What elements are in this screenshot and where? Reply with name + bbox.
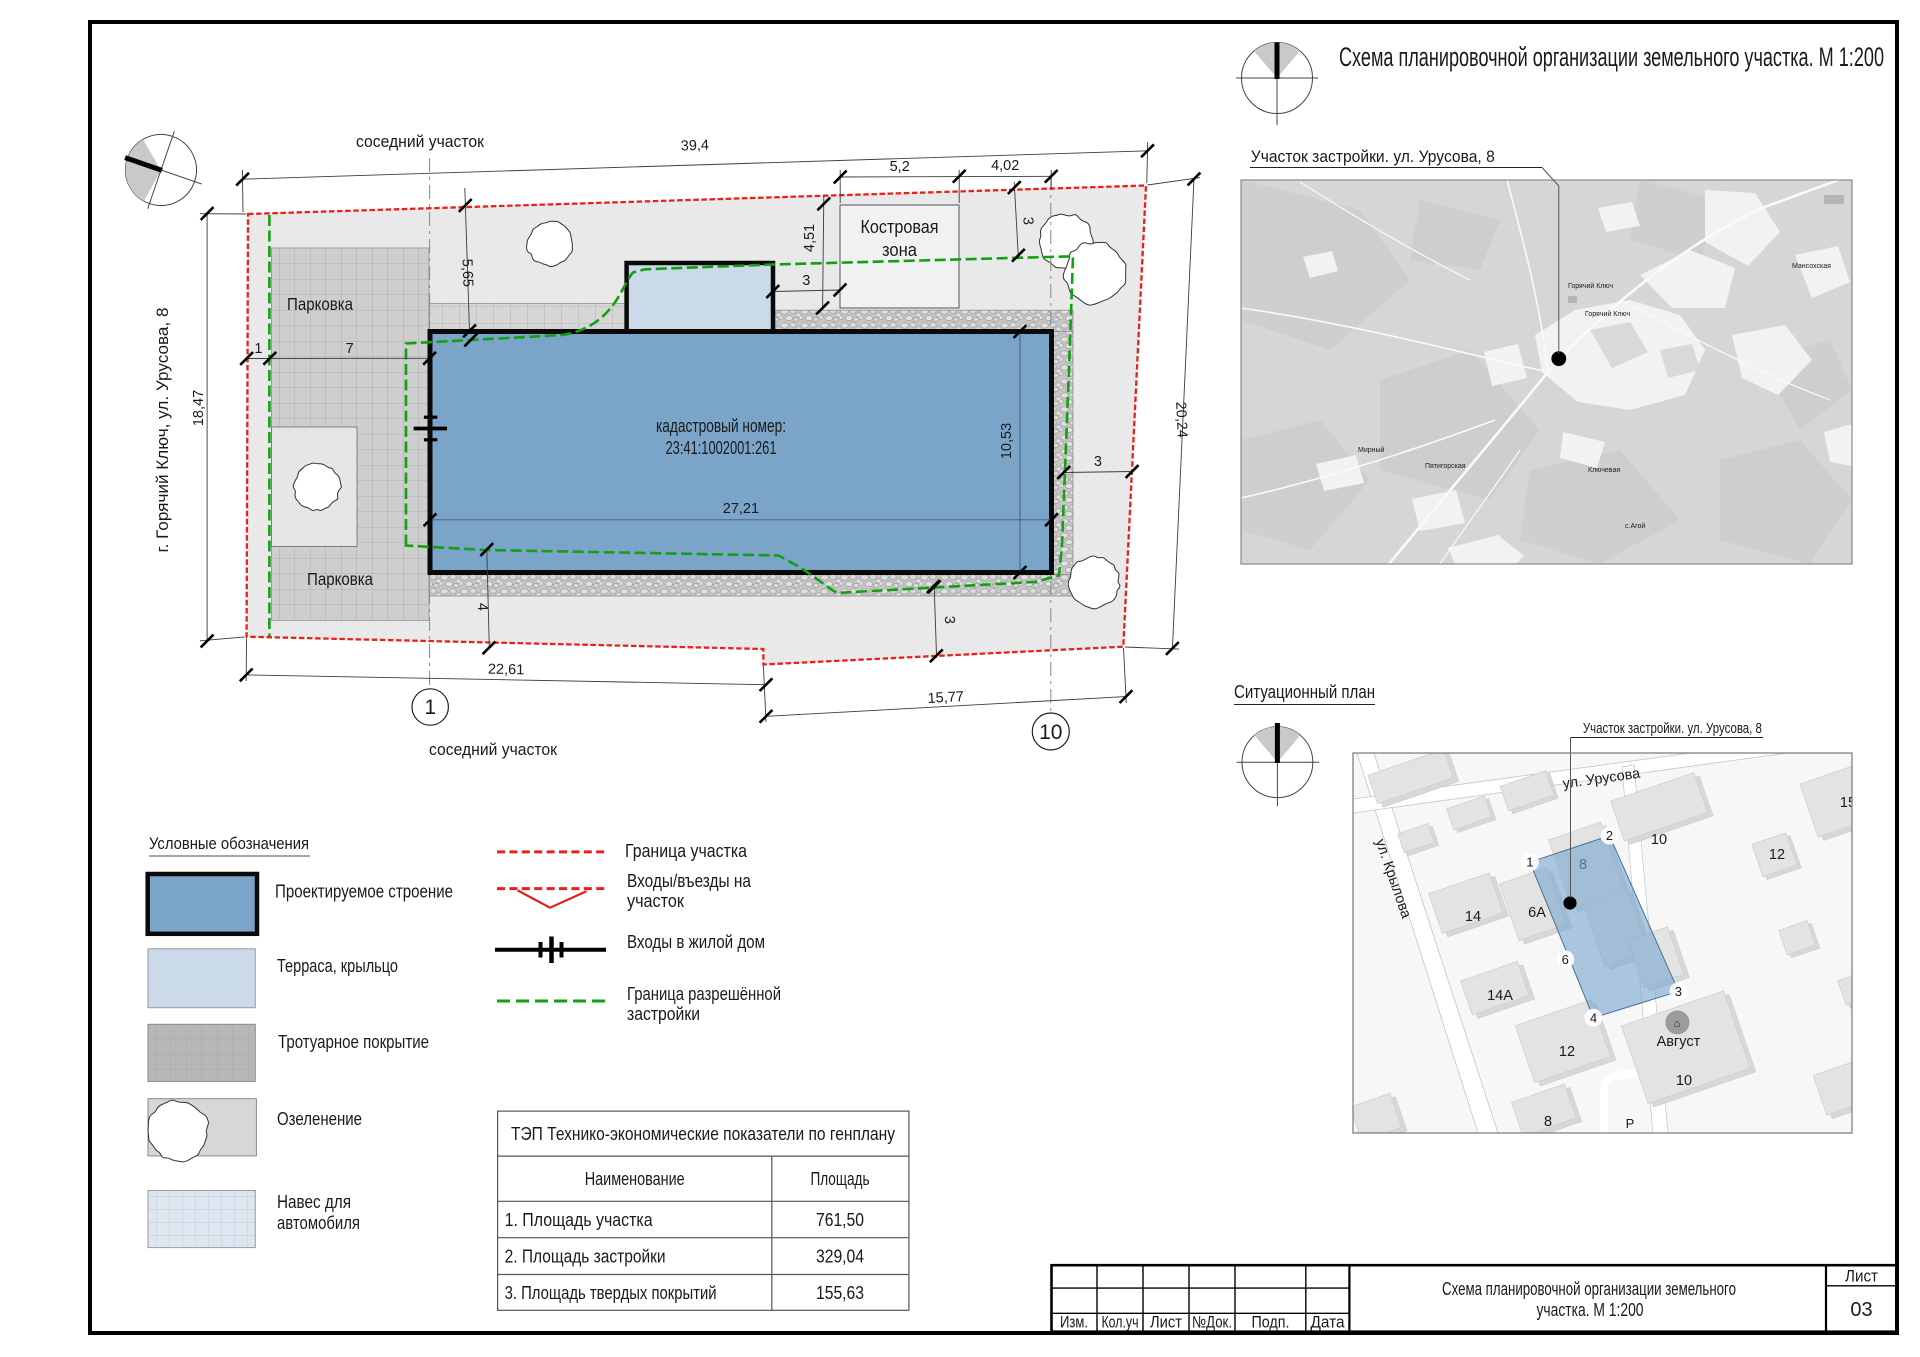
svg-text:зона: зона xyxy=(882,239,918,260)
svg-text:г. Горячий Ключ, ул. Урусова,: г. Горячий Ключ, ул. Урусова, 8 xyxy=(153,308,172,553)
svg-text:23:41:1002001:261: 23:41:1002001:261 xyxy=(666,437,777,458)
svg-text:⌂: ⌂ xyxy=(1674,1018,1681,1030)
svg-text:Наименование: Наименование xyxy=(585,1168,685,1189)
svg-text:39,4: 39,4 xyxy=(681,138,710,155)
svg-text:761,50: 761,50 xyxy=(816,1209,864,1230)
svg-text:12: 12 xyxy=(1769,847,1785,863)
svg-text:участка. М 1:200: участка. М 1:200 xyxy=(1537,1299,1644,1320)
svg-text:Парковка: Парковка xyxy=(287,294,353,314)
svg-text:10,53: 10,53 xyxy=(999,423,1015,459)
svg-text:Изм.: Изм. xyxy=(1060,1314,1088,1332)
svg-text:Лист: Лист xyxy=(1150,1314,1182,1332)
svg-text:Граница участка: Граница участка xyxy=(625,841,748,861)
svg-text:ТЭП Технико-экономические пока: ТЭП Технико-экономические показатели по … xyxy=(511,1123,896,1144)
svg-text:22,61: 22,61 xyxy=(488,662,525,679)
svg-text:Костровая: Костровая xyxy=(861,216,939,237)
svg-text:20,24: 20,24 xyxy=(1172,401,1190,438)
svg-text:Пятигорская: Пятигорская xyxy=(1425,463,1466,470)
svg-text:Озеленение: Озеленение xyxy=(277,1109,362,1129)
svg-text:4,02: 4,02 xyxy=(991,158,1019,174)
svg-text:кадастровый номер:: кадастровый номер: xyxy=(656,415,786,436)
svg-text:1: 1 xyxy=(254,341,262,357)
svg-text:Ситуационный план: Ситуационный план xyxy=(1234,682,1375,702)
svg-text:Парковка: Парковка xyxy=(307,569,373,589)
svg-text:1: 1 xyxy=(1526,855,1533,870)
svg-text:3: 3 xyxy=(1675,984,1682,999)
svg-text:27,21: 27,21 xyxy=(723,501,759,517)
svg-text:3: 3 xyxy=(1094,454,1102,470)
svg-text:5,65: 5,65 xyxy=(459,258,476,287)
svg-text:14А: 14А xyxy=(1487,988,1513,1004)
svg-text:Граница разрешённой: Граница разрешённой xyxy=(627,984,781,1004)
svg-text:15: 15 xyxy=(1840,795,1856,811)
svg-text:застройки: застройки xyxy=(627,1004,700,1024)
svg-text:10: 10 xyxy=(1651,832,1667,848)
svg-text:Ключевая: Ключевая xyxy=(1588,467,1620,474)
svg-text:Лист: Лист xyxy=(1845,1268,1878,1286)
svg-text:Горячий Ключ: Горячий Ключ xyxy=(1568,282,1613,290)
svg-text:Входы/въезды на: Входы/въезды на xyxy=(627,871,752,891)
svg-text:3: 3 xyxy=(941,616,957,625)
svg-text:329,04: 329,04 xyxy=(816,1246,864,1267)
svg-text:Терраса, крыльцо: Терраса, крыльцо xyxy=(277,956,398,976)
svg-text:18,47: 18,47 xyxy=(191,390,207,426)
svg-text:3: 3 xyxy=(802,273,810,289)
svg-text:Участок застройки. ул. Урусова: Участок застройки. ул. Урусова, 8 xyxy=(1583,720,1762,737)
svg-text:10: 10 xyxy=(1676,1073,1692,1089)
svg-text:Схема планировочной организаци: Схема планировочной организации земельно… xyxy=(1442,1278,1736,1299)
svg-text:Условные обозначения: Условные обозначения xyxy=(149,834,309,853)
svg-text:Тротуарное покрытие: Тротуарное покрытие xyxy=(278,1032,429,1052)
svg-text:6: 6 xyxy=(1562,952,1569,967)
svg-text:участок: участок xyxy=(627,891,684,911)
svg-text:Кол.уч: Кол.уч xyxy=(1102,1314,1139,1332)
svg-text:Дата: Дата xyxy=(1311,1314,1346,1332)
svg-text:1: 1 xyxy=(424,696,436,719)
svg-text:7: 7 xyxy=(346,341,354,357)
svg-text:Горячий Ключ: Горячий Ключ xyxy=(1585,310,1630,318)
svg-text:5,2: 5,2 xyxy=(890,159,910,175)
svg-text:автомобиля: автомобиля xyxy=(277,1213,360,1233)
svg-text:соседний участок: соседний участок xyxy=(429,740,558,759)
svg-text:Схема планировочной организаци: Схема планировочной организации земельно… xyxy=(1339,42,1884,72)
svg-text:№Док.: №Док. xyxy=(1192,1314,1232,1332)
svg-text:Участок застройки. ул. Урусова: Участок застройки. ул. Урусова, 8 xyxy=(1251,147,1495,166)
svg-text:2: 2 xyxy=(1606,828,1613,843)
svg-text:Проектируемое строение: Проектируемое строение xyxy=(275,882,453,902)
svg-text:Август: Август xyxy=(1657,1034,1701,1050)
svg-text:03: 03 xyxy=(1850,1299,1872,1321)
svg-text:8: 8 xyxy=(1544,1114,1552,1130)
svg-text:Входы в жилой дом: Входы в жилой дом xyxy=(627,932,765,952)
svg-text:15,77: 15,77 xyxy=(927,689,964,707)
svg-text:соседний участок: соседний участок xyxy=(356,132,485,151)
svg-text:14: 14 xyxy=(1465,909,1481,925)
svg-text:1. Площадь участка: 1. Площадь участка xyxy=(505,1209,654,1230)
svg-text:12: 12 xyxy=(1559,1044,1575,1060)
svg-text:Мансохская: Мансохская xyxy=(1792,263,1831,270)
svg-text:4: 4 xyxy=(474,603,490,612)
svg-text:10: 10 xyxy=(1039,721,1062,744)
svg-text:3. Площадь твердых покрытий: 3. Площадь твердых покрытий xyxy=(505,1282,717,1303)
svg-text:4: 4 xyxy=(1590,1010,1597,1025)
svg-text:Подп.: Подп. xyxy=(1252,1314,1290,1332)
svg-text:155,63: 155,63 xyxy=(816,1282,864,1303)
svg-text:6А: 6А xyxy=(1528,905,1546,921)
svg-text:Мирный: Мирный xyxy=(1358,446,1385,454)
svg-text:Навес для: Навес для xyxy=(277,1192,351,1212)
svg-text:3: 3 xyxy=(1019,217,1035,226)
svg-text:4,51: 4,51 xyxy=(802,224,818,252)
svg-text:с.Агой: с.Агой xyxy=(1625,522,1645,530)
svg-text:Площадь: Площадь xyxy=(811,1168,870,1189)
svg-text:Р: Р xyxy=(1626,1116,1635,1131)
svg-text:2. Площадь застройки: 2. Площадь застройки xyxy=(505,1246,666,1267)
